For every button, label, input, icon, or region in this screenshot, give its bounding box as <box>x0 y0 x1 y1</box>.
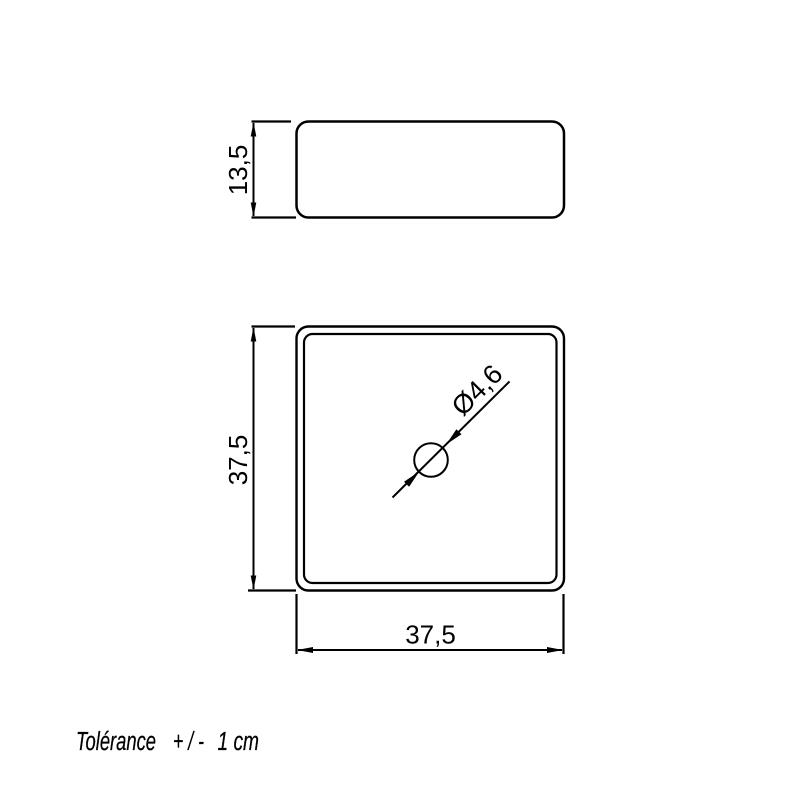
svg-text:13,5: 13,5 <box>223 145 253 196</box>
svg-text:1 cm: 1 cm <box>218 728 260 756</box>
svg-text:+ / -: + / - <box>173 728 204 756</box>
svg-text:37,5: 37,5 <box>223 435 253 486</box>
svg-text:Tolérance: Tolérance <box>76 728 156 756</box>
svg-text:37,5: 37,5 <box>405 620 456 650</box>
